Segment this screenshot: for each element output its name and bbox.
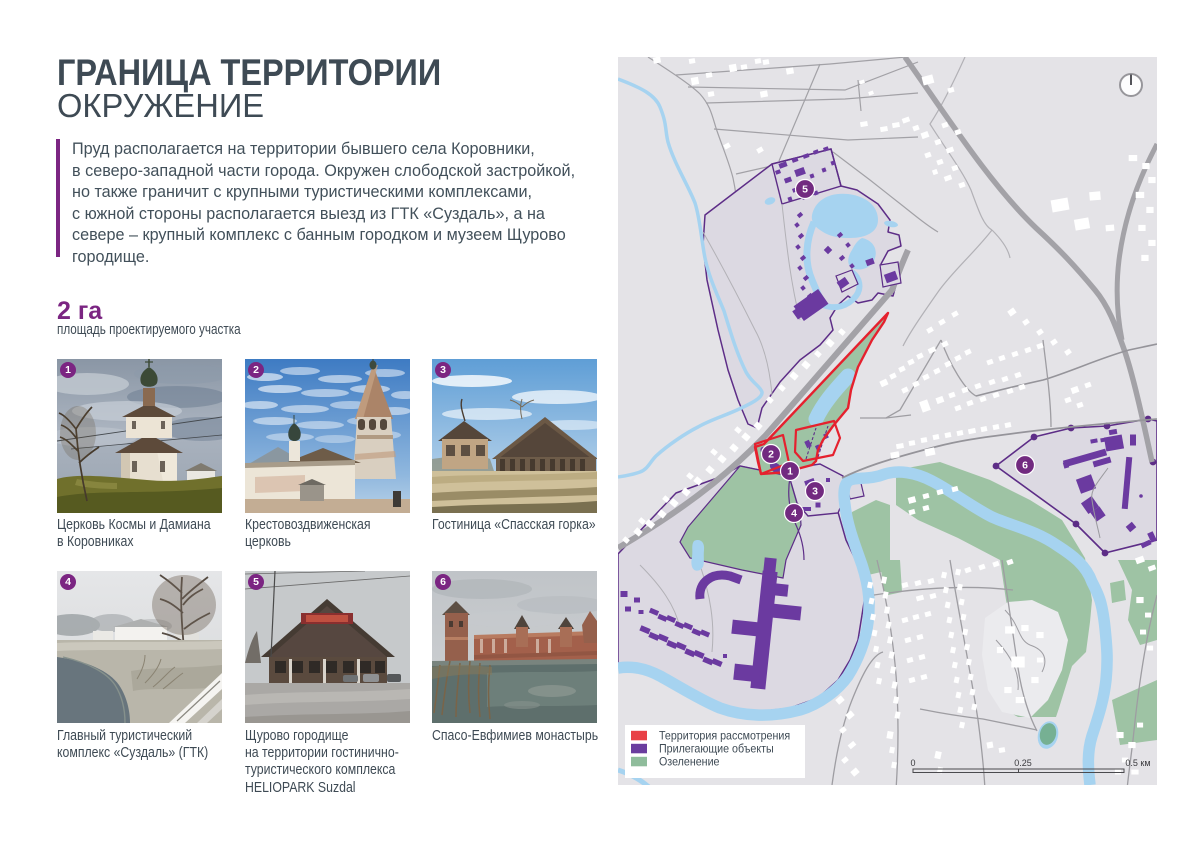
svg-text:5: 5	[802, 184, 808, 196]
svg-text:2: 2	[768, 449, 774, 461]
svg-text:3: 3	[812, 486, 818, 498]
svg-text:Территория рассмотрения: Территория рассмотрения	[659, 730, 790, 742]
svg-text:4: 4	[791, 508, 797, 520]
svg-text:Озеленение: Озеленение	[659, 756, 720, 768]
svg-text:0.5 км: 0.5 км	[1125, 758, 1150, 768]
svg-text:6: 6	[1022, 460, 1028, 472]
svg-text:Прилегающие объекты: Прилегающие объекты	[659, 743, 774, 755]
svg-text:1: 1	[787, 466, 793, 478]
svg-text:0.25: 0.25	[1014, 758, 1032, 768]
svg-text:0: 0	[910, 758, 915, 768]
